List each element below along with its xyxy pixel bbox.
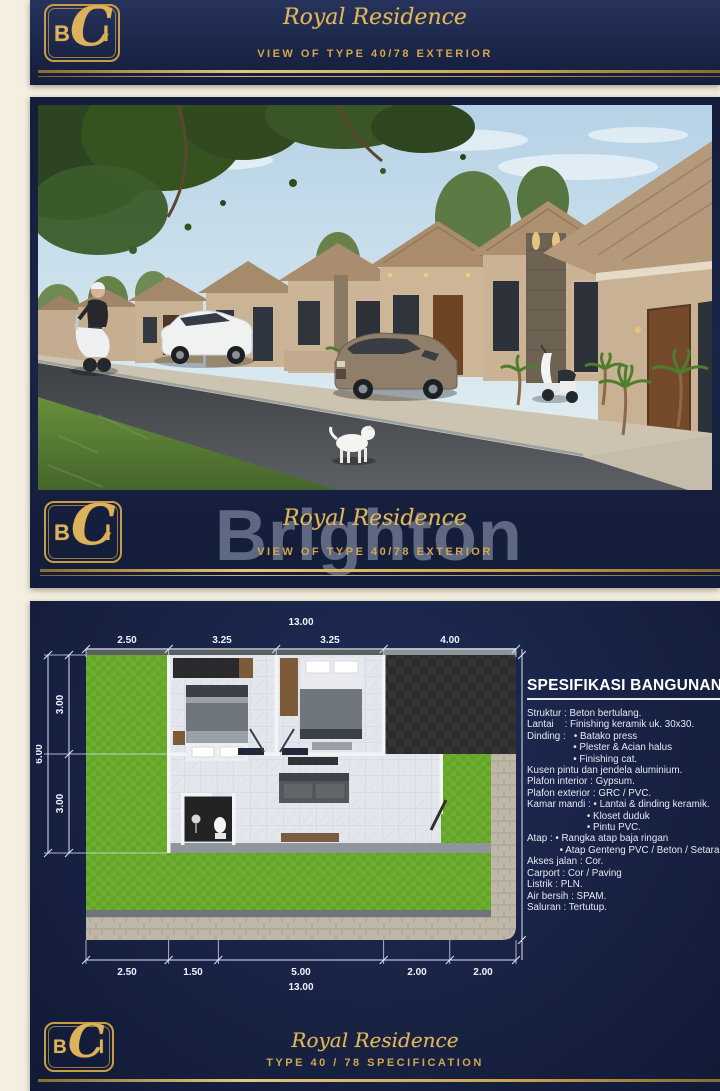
gold-divider-line-thin — [40, 575, 720, 576]
top-banner: B C I Royal Residence VIEW OF TYPE 40/78… — [30, 0, 720, 85]
console-table — [281, 833, 339, 842]
spec-line: Carport : Cor / Paving — [527, 868, 719, 879]
spec-line: • Finishing cat. — [527, 754, 719, 765]
specification-list: Struktur : Beton bertulang. Lantai : Fin… — [527, 708, 719, 913]
dim-bottom-3: 5.00 — [291, 967, 311, 978]
exterior-panel: Brighton B C I Royal Residence VIEW OF T… — [30, 97, 720, 588]
top-banner-subtitle: VIEW OF TYPE 40/78 EXTERIOR — [30, 48, 720, 60]
dim-bottom-total: 13.00 — [288, 982, 313, 993]
toilet — [214, 817, 226, 833]
spec-line: • Kloset duduk — [527, 811, 719, 822]
specification-block: SPESIFIKASI BANGUNAN Struktur : Beton be… — [527, 677, 719, 913]
dim-bottom-4: 2.00 — [407, 967, 427, 978]
exterior-subtitle: VIEW OF TYPE 40/78 EXTERIOR — [30, 546, 720, 558]
dim-top-2: 3.25 — [212, 635, 232, 646]
spec-line: Plafon interior : Gypsum. — [527, 776, 719, 787]
dim-left-1: 3.00 — [55, 694, 66, 714]
dim-bottom-1: 2.50 — [117, 967, 137, 978]
exterior-title: Royal Residence — [30, 506, 720, 531]
gold-divider-line — [38, 1079, 720, 1082]
dim-top-1: 2.50 — [117, 635, 137, 646]
exterior-render — [38, 105, 712, 490]
dim-left-total: 6.00 — [36, 744, 45, 764]
plan-panel: 13.00 2.50 3.25 3.25 4.00 2.50 1.50 5.00… — [30, 601, 720, 1091]
gold-divider-line — [38, 70, 720, 73]
carport — [384, 655, 516, 754]
spec-line: • Pintu PVC. — [527, 822, 719, 833]
bed-1-headboard — [186, 685, 248, 697]
dim-top-4: 4.00 — [440, 635, 460, 646]
dim-top-total: 13.00 — [288, 617, 313, 628]
garden-patch — [441, 754, 491, 853]
dim-left-2: 3.00 — [55, 793, 66, 813]
top-banner-title: Royal Residence — [30, 5, 720, 30]
spec-line: Saluran : Tertutup. — [527, 902, 719, 913]
dim-bottom-2: 1.50 — [183, 967, 203, 978]
spec-line: Lantai : Finishing keramik uk. 30x30. — [527, 719, 719, 730]
dim-bottom-5: 2.00 — [473, 967, 493, 978]
gold-divider-line — [40, 569, 720, 572]
front-paving — [86, 917, 491, 940]
spec-line: Plafon exterior : GRC / PVC. — [527, 788, 719, 799]
terrace-edge — [169, 843, 491, 853]
front-lawn — [86, 853, 491, 910]
plan-footer-title: Royal Residence — [30, 1028, 720, 1052]
spec-line: • Plester & Acian halus — [527, 742, 719, 753]
spec-line: Listrik : PLN. — [527, 879, 719, 890]
gold-divider-line-thin — [38, 76, 720, 77]
bronze-mpv — [333, 333, 457, 401]
bathroom — [185, 797, 233, 842]
driveway — [491, 754, 516, 940]
spec-line: Atap : • Rangka atap baja ringan — [527, 833, 719, 844]
spec-line: • Atap Genteng PVC / Beton / Setara — [527, 845, 719, 856]
spec-line: Air bersih : SPAM. — [527, 891, 719, 902]
sink — [192, 815, 201, 824]
flyer-page: B C I Royal Residence VIEW OF TYPE 40/78… — [0, 0, 720, 1091]
spec-line: Kamar mandi : • Lantai & dinding keramik… — [527, 799, 719, 810]
kerb-strip — [86, 910, 491, 917]
spec-line: Dinding : • Batako press — [527, 731, 719, 742]
plan-footer-subtitle: TYPE 40 / 78 SPECIFICATION — [30, 1057, 720, 1069]
floor-plan: 13.00 2.50 3.25 3.25 4.00 2.50 1.50 5.00… — [36, 611, 526, 996]
specification-title: SPESIFIKASI BANGUNAN — [527, 677, 720, 700]
exterior-render-frame — [38, 105, 712, 490]
spec-line: Struktur : Beton bertulang. — [527, 708, 719, 719]
spec-line: Kusen pintu dan jendela aluminium. — [527, 765, 719, 776]
tv-cabinet — [288, 757, 338, 765]
spec-line: Akses jalan : Cor. — [527, 856, 719, 867]
dim-top-3: 3.25 — [320, 635, 340, 646]
